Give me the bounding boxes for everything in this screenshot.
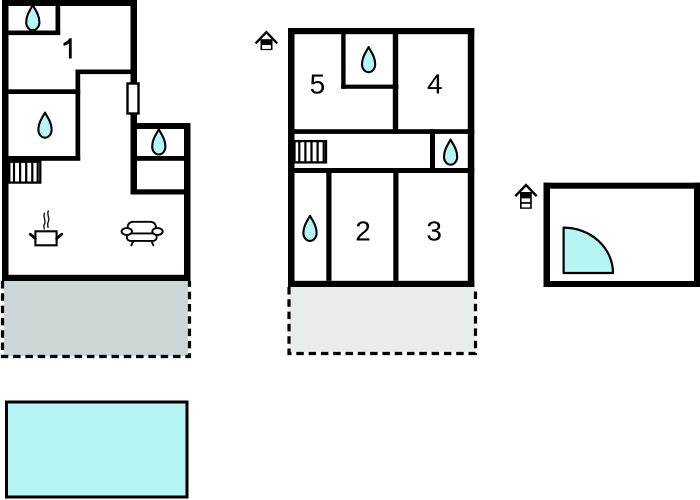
svg-text:5: 5 [310,69,326,100]
svg-text:2: 2 [355,216,371,247]
svg-text:4: 4 [427,69,443,100]
svg-text:3: 3 [426,216,442,247]
